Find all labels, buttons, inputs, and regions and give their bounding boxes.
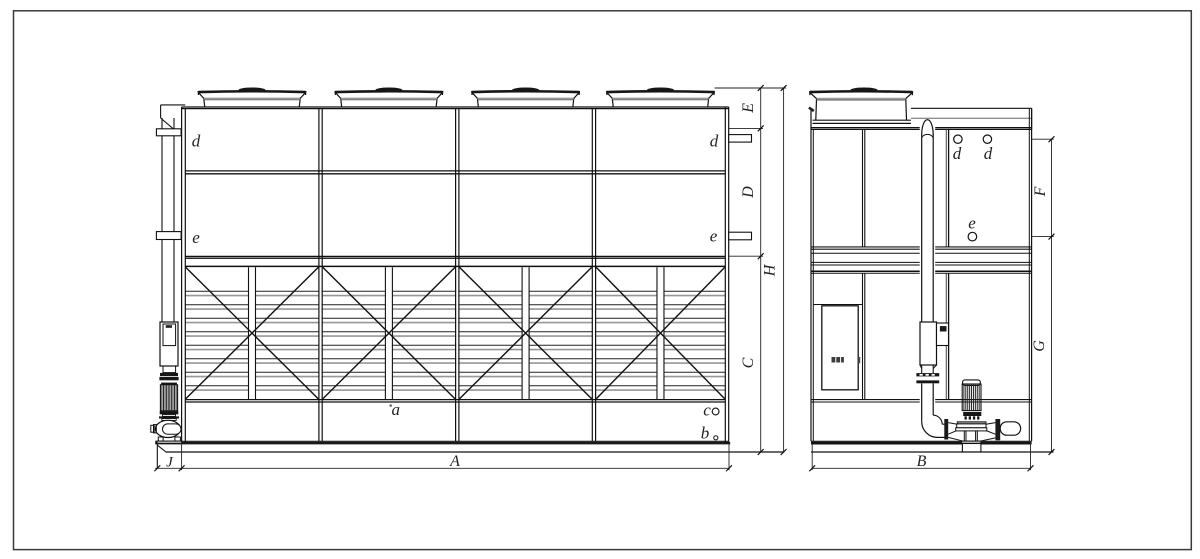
svg-text:F: F (1032, 186, 1049, 197)
svg-text:C: C (740, 357, 757, 368)
svg-text:e: e (710, 226, 718, 245)
svg-text:a: a (391, 400, 400, 419)
svg-text:d: d (710, 132, 719, 151)
svg-text:H: H (762, 263, 779, 277)
svg-text:G: G (1031, 340, 1048, 352)
svg-text:E: E (740, 103, 757, 114)
svg-text:B: B (917, 453, 927, 470)
svg-text:D: D (740, 186, 757, 199)
svg-text:b: b (701, 423, 710, 442)
svg-text:c: c (703, 400, 711, 419)
svg-text:e: e (192, 228, 200, 247)
svg-text:d: d (953, 144, 962, 163)
svg-text:d: d (192, 132, 201, 151)
svg-text:d: d (984, 144, 993, 163)
svg-text:e: e (968, 214, 976, 233)
svg-text:A: A (449, 453, 460, 470)
